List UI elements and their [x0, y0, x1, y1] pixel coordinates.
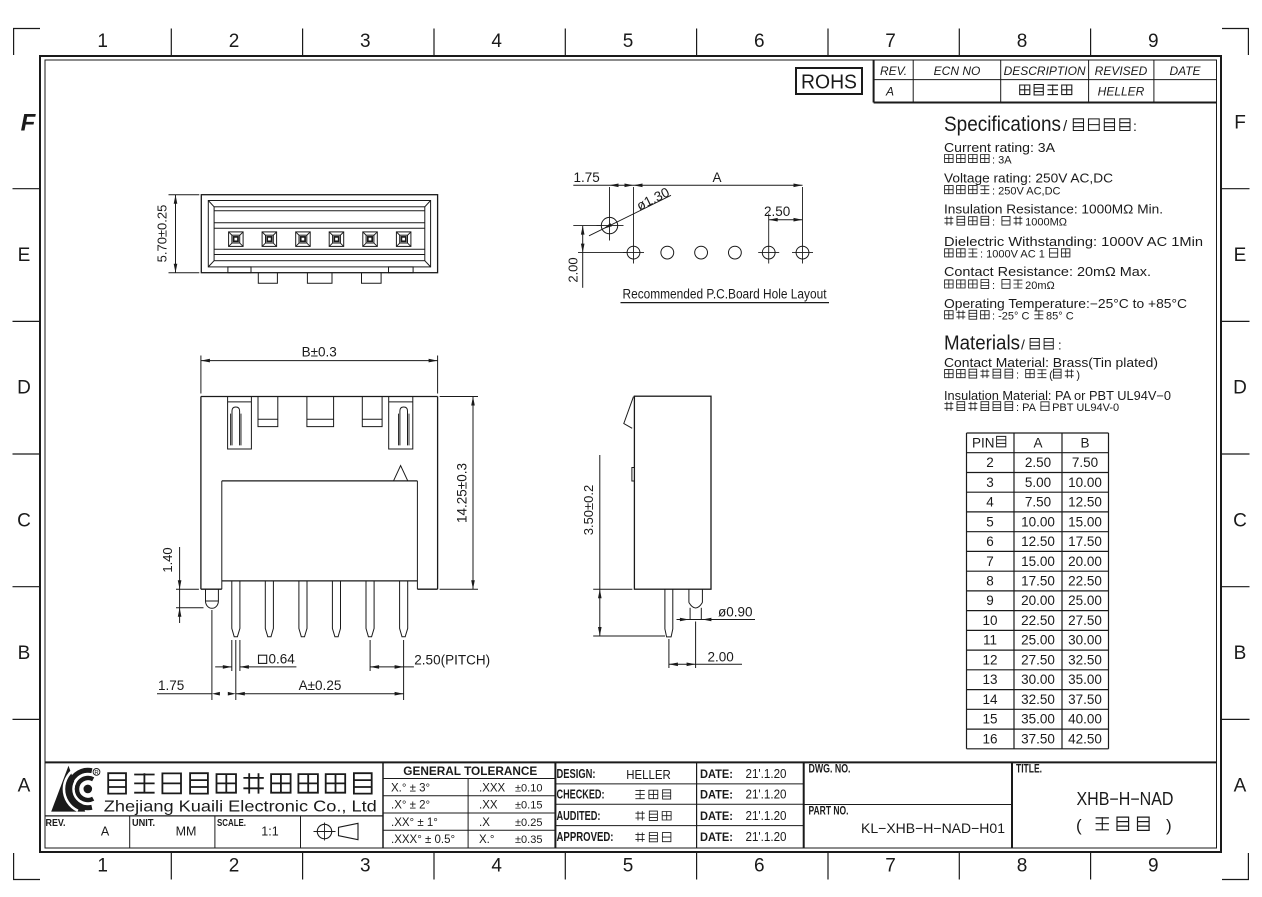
svg-text::: : [1016, 370, 1019, 382]
svg-text:7.50: 7.50 [1072, 455, 1098, 470]
svg-text:5: 5 [623, 31, 634, 52]
svg-text:9: 9 [986, 593, 994, 608]
svg-text:AUDITED:: AUDITED: [557, 809, 601, 823]
svg-text:5.70±0.25: 5.70±0.25 [155, 205, 170, 263]
svg-text:20.00: 20.00 [1021, 593, 1055, 608]
svg-text:15.00: 15.00 [1068, 514, 1102, 529]
svg-text:PIN: PIN [972, 435, 995, 450]
svg-text:5: 5 [986, 514, 994, 529]
svg-text:85° C: 85° C [1046, 311, 1074, 323]
svg-text:20mΩ: 20mΩ [1025, 280, 1055, 292]
svg-text:DESCRIPTION: DESCRIPTION [1004, 64, 1086, 78]
svg-text:Materials: Materials [944, 333, 1020, 355]
svg-text:E: E [1234, 245, 1247, 266]
svg-text:10.00: 10.00 [1068, 475, 1102, 490]
svg-text:: 1000V AC 1: : 1000V AC 1 [980, 249, 1045, 261]
svg-text:8: 8 [986, 574, 994, 589]
svg-text:1: 1 [97, 856, 108, 877]
svg-text:B±0.3: B±0.3 [302, 345, 337, 360]
svg-text:11: 11 [983, 633, 997, 648]
svg-text:5.00: 5.00 [1025, 475, 1051, 490]
svg-text:D: D [1233, 378, 1247, 399]
svg-text:.XX° ± 1°: .XX° ± 1° [391, 817, 438, 829]
svg-text:6: 6 [754, 856, 765, 877]
svg-text:40.00: 40.00 [1068, 712, 1102, 727]
svg-text:): ) [1076, 370, 1080, 382]
svg-text:1.40: 1.40 [160, 547, 175, 572]
svg-text:PART NO.: PART NO. [809, 806, 849, 818]
svg-text:Current rating: 3A: Current rating: 3A [944, 141, 1056, 155]
svg-text:E: E [18, 245, 31, 266]
svg-text:A: A [1033, 435, 1042, 450]
svg-text:F: F [1234, 112, 1246, 133]
svg-text:7: 7 [885, 31, 896, 52]
svg-text:(: ( [1049, 370, 1053, 382]
svg-text:F: F [21, 109, 37, 136]
svg-text:3: 3 [360, 31, 371, 52]
svg-text:8: 8 [1017, 856, 1028, 877]
svg-text:ECN NO: ECN NO [934, 64, 981, 78]
svg-text:A: A [101, 825, 110, 839]
svg-text:Voltage rating: 250V AC,DC: Voltage rating: 250V AC,DC [944, 172, 1113, 186]
svg-text:: 250V AC,DC: : 250V AC,DC [992, 186, 1061, 198]
svg-text:DATE: DATE [1169, 64, 1201, 78]
svg-text:.XXX° ± 0.5°: .XXX° ± 0.5° [391, 834, 455, 846]
svg-text:B: B [18, 643, 31, 664]
svg-text:A: A [885, 85, 894, 99]
svg-text:DWG. NO.: DWG. NO. [809, 764, 851, 776]
svg-text:.X° ± 2°: .X° ± 2° [391, 800, 430, 812]
svg-text:21'.1.20: 21'.1.20 [746, 809, 787, 823]
svg-text:8: 8 [1017, 31, 1028, 52]
svg-text:27.50: 27.50 [1068, 613, 1102, 628]
svg-text:TITLE.: TITLE. [1016, 764, 1042, 776]
svg-text:3.50±0.2: 3.50±0.2 [581, 485, 596, 536]
svg-text:2.50: 2.50 [764, 204, 790, 219]
svg-text:12.50: 12.50 [1068, 495, 1102, 510]
svg-text:±0.15: ±0.15 [515, 800, 542, 812]
svg-text:C: C [17, 510, 31, 531]
svg-text:2.00: 2.00 [708, 649, 734, 664]
svg-text:30.00: 30.00 [1021, 672, 1055, 687]
svg-text:25.00: 25.00 [1068, 593, 1102, 608]
svg-text:Dielectric Withstanding: 1: Dielectric Withstanding: 1000V AC 1Min [944, 235, 1203, 249]
svg-text:20.00: 20.00 [1068, 554, 1102, 569]
svg-text:REV.: REV. [46, 817, 66, 829]
svg-text:6: 6 [986, 534, 994, 549]
svg-text:CHECKED:: CHECKED: [557, 788, 605, 802]
svg-text::: : [1133, 118, 1137, 134]
svg-text:21'.1.20: 21'.1.20 [746, 830, 787, 844]
svg-text:±0.35: ±0.35 [515, 834, 542, 846]
svg-text:REV.: REV. [880, 64, 907, 78]
svg-text:5: 5 [623, 856, 634, 877]
svg-text:32.50: 32.50 [1068, 652, 1102, 667]
svg-text:4: 4 [491, 31, 502, 52]
svg-text:HELLER: HELLER [626, 767, 671, 782]
svg-text:Operating Temperature:−25°C: Operating Temperature:−25°C to +85°C [944, 297, 1187, 311]
svg-text:PBT UL94V-0: PBT UL94V-0 [1052, 402, 1119, 414]
svg-text:15: 15 [982, 712, 997, 727]
svg-text:DATE:: DATE: [700, 809, 733, 823]
svg-text:DATE:: DATE: [700, 767, 733, 781]
svg-text:XHB−H−NAD: XHB−H−NAD [1077, 789, 1174, 809]
svg-text:1000MΩ: 1000MΩ [1025, 217, 1067, 229]
svg-text::: : [992, 280, 995, 292]
svg-text:): ) [1166, 816, 1172, 835]
svg-text:Insulation Resistance: 1000M: Insulation Resistance: 1000MΩ Min. [944, 203, 1163, 217]
svg-text:3: 3 [986, 475, 994, 490]
svg-text:12.50: 12.50 [1021, 534, 1055, 549]
svg-text:15.00: 15.00 [1021, 554, 1055, 569]
svg-text:9: 9 [1148, 856, 1159, 877]
svg-text:X.°: X.° [479, 834, 494, 846]
svg-text:2.00: 2.00 [566, 257, 581, 282]
svg-text:35.00: 35.00 [1068, 672, 1102, 687]
svg-text:3: 3 [360, 856, 371, 877]
svg-text:Recommended P.C.Board Hole L: Recommended P.C.Board Hole Layout [623, 286, 827, 301]
svg-text:UNIT.: UNIT. [132, 817, 155, 829]
svg-text:C: C [1233, 510, 1247, 531]
svg-text:APPROVED:: APPROVED: [557, 830, 614, 844]
svg-text:9: 9 [1148, 31, 1159, 52]
svg-text:16: 16 [982, 731, 997, 746]
svg-text:ROHS: ROHS [801, 72, 857, 94]
svg-text:: 3A: : 3A [992, 154, 1012, 166]
svg-text:2: 2 [986, 455, 994, 470]
svg-text:X.° ± 3°: X.° ± 3° [391, 782, 430, 794]
svg-text:22.50: 22.50 [1068, 574, 1102, 589]
svg-text:17.50: 17.50 [1068, 534, 1102, 549]
svg-text:: -25° C: : -25° C [992, 311, 1029, 323]
svg-text:25.00: 25.00 [1021, 633, 1055, 648]
svg-text:D: D [17, 378, 31, 399]
svg-text:Contact Material: Brass(Tin: Contact Material: Brass(Tin plated) [944, 356, 1158, 370]
svg-text:B: B [1080, 435, 1089, 450]
svg-text:0.64: 0.64 [269, 652, 296, 667]
svg-text:21'.1.20: 21'.1.20 [746, 767, 787, 781]
svg-text:(: ( [1076, 816, 1082, 835]
svg-text:12: 12 [982, 652, 997, 667]
svg-text:SCALE.: SCALE. [217, 817, 246, 829]
svg-text:A: A [18, 776, 31, 797]
svg-text:14.25±0.3: 14.25±0.3 [455, 463, 470, 523]
svg-text:A±0.25: A±0.25 [299, 678, 342, 693]
svg-text:±0.10: ±0.10 [515, 782, 542, 794]
svg-text:DESIGN:: DESIGN: [557, 767, 596, 781]
svg-text:1.75: 1.75 [158, 678, 184, 693]
svg-text:10.00: 10.00 [1021, 514, 1055, 529]
svg-text:.X: .X [479, 817, 490, 829]
svg-text:4: 4 [986, 495, 994, 510]
svg-text:MM: MM [176, 825, 197, 839]
svg-text:Contact Resistance: 20mΩ: Contact Resistance: 20mΩ Max. [944, 265, 1151, 279]
svg-text:21'.1.20: 21'.1.20 [746, 788, 787, 802]
svg-text:.XXX: .XXX [479, 782, 506, 794]
svg-text:27.50: 27.50 [1021, 652, 1055, 667]
svg-text:/: / [1021, 337, 1025, 353]
svg-text:37.50: 37.50 [1068, 692, 1102, 707]
svg-text:10: 10 [982, 613, 997, 628]
svg-text:ø0.90: ø0.90 [718, 605, 753, 620]
svg-text:DATE:: DATE: [700, 830, 733, 844]
svg-text:2.50(PITCH): 2.50(PITCH) [414, 652, 490, 667]
svg-text:2: 2 [229, 856, 240, 877]
svg-text:2: 2 [229, 31, 240, 52]
svg-text:A: A [1234, 776, 1247, 797]
svg-text:4: 4 [491, 856, 502, 877]
svg-text:R: R [94, 770, 99, 776]
svg-text:7: 7 [885, 856, 896, 877]
svg-text:: PA: : PA [1016, 402, 1037, 414]
svg-text:7.50: 7.50 [1025, 495, 1051, 510]
svg-text:Specifications: Specifications [944, 112, 1061, 136]
svg-text:32.50: 32.50 [1021, 692, 1055, 707]
svg-text:A: A [712, 170, 721, 185]
svg-text:HELLER: HELLER [1098, 85, 1145, 99]
svg-text:35.00: 35.00 [1021, 712, 1055, 727]
svg-text:13: 13 [982, 672, 997, 687]
svg-text:GENERAL TOLERANCE: GENERAL TOLERANCE [403, 764, 537, 778]
svg-text:B: B [1234, 643, 1247, 664]
svg-text:.XX: .XX [479, 800, 498, 812]
svg-text:2.50: 2.50 [1025, 455, 1051, 470]
svg-text:22.50: 22.50 [1021, 613, 1055, 628]
svg-text:±0.25: ±0.25 [515, 817, 542, 829]
svg-text:7: 7 [986, 554, 994, 569]
svg-text:1:1: 1:1 [261, 825, 278, 839]
svg-text:KL−XHB−H−NAD−H01: KL−XHB−H−NAD−H01 [861, 820, 1005, 836]
svg-text:Insulation Material: PA or: Insulation Material: PA or PBT UL94V−0 [944, 389, 1171, 403]
svg-text:REVISED: REVISED [1095, 64, 1148, 78]
svg-text:1.75: 1.75 [574, 170, 600, 185]
svg-text:14: 14 [982, 692, 998, 707]
svg-text:6: 6 [754, 31, 765, 52]
svg-text:17.50: 17.50 [1021, 574, 1055, 589]
svg-text:42.50: 42.50 [1068, 731, 1102, 746]
svg-text:1: 1 [97, 31, 108, 52]
svg-text:Zhejiang Kuaili Electronic: Zhejiang Kuaili Electronic Co., Ltd [104, 799, 377, 816]
svg-text:DATE:: DATE: [700, 788, 733, 802]
svg-text:30.00: 30.00 [1068, 633, 1102, 648]
svg-text::: : [992, 217, 995, 229]
svg-text::: : [1058, 338, 1062, 353]
svg-text:37.50: 37.50 [1021, 731, 1055, 746]
